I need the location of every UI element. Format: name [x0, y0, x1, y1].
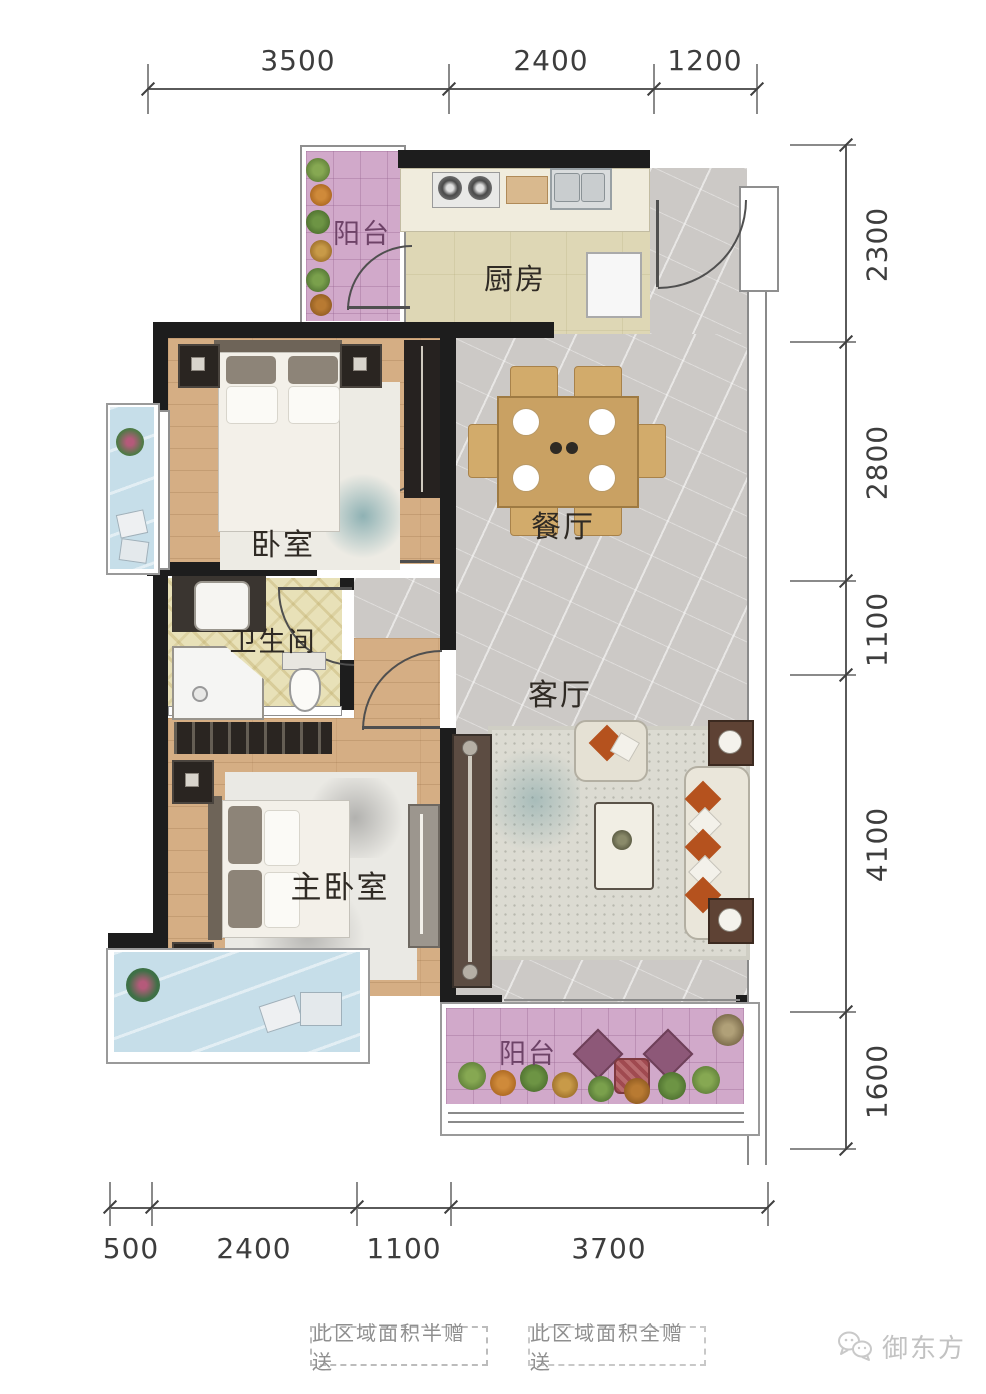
- wall-bathroom-left: [153, 578, 168, 718]
- wall-living-left-top: [440, 597, 456, 650]
- master-tv: [420, 814, 423, 934]
- plant: [692, 1066, 720, 1094]
- master-door-leaf: [362, 726, 440, 729]
- toilet-bowl: [289, 668, 321, 712]
- tv-console-knob: [462, 964, 478, 980]
- dim-bottom-1100: 1100: [344, 1232, 464, 1265]
- master-bed-headboard: [208, 796, 222, 940]
- dim-top-2400: 2400: [491, 44, 611, 77]
- balcony-bottom-label: 阳台: [488, 1032, 568, 1071]
- living-label: 客厅: [500, 670, 620, 714]
- plant: [306, 268, 330, 292]
- bedroom-label: 卧室: [223, 520, 343, 564]
- dim-bottom-2400: 2400: [194, 1232, 314, 1265]
- place-setting: [588, 408, 616, 436]
- entry-door-leaf: [656, 200, 659, 287]
- pillow: [288, 356, 338, 384]
- plant: [310, 294, 332, 316]
- plant: [490, 1070, 516, 1096]
- wall-bedroom-right: [440, 322, 456, 597]
- balcony-door-leaf: [347, 306, 410, 309]
- tv-console: [452, 734, 492, 988]
- coffee-table-decor: [612, 830, 632, 850]
- plant: [126, 968, 160, 1002]
- dim-right-2300: 2300: [861, 195, 894, 295]
- place-setting: [512, 464, 540, 492]
- pillow: [228, 806, 262, 864]
- legend-half-gift: 此区域面积半赠送: [310, 1326, 488, 1366]
- floor-plan: 3500 2400 1200 2300 2800 1100 4100 1600 …: [0, 0, 986, 1394]
- side-table-plant: [718, 730, 742, 754]
- pillow: [226, 386, 278, 424]
- nightstand-lamp: [353, 357, 367, 371]
- sink-basin: [554, 173, 580, 202]
- bathroom-label: 卫生间: [203, 620, 343, 659]
- tv-console-knob: [462, 740, 478, 756]
- cutting-board: [506, 176, 548, 204]
- dim-top-1200: 1200: [645, 44, 765, 77]
- living-rug-accent: [490, 740, 580, 860]
- wechat-bubbles-icon: [836, 1330, 874, 1362]
- table-centerpiece: [566, 442, 578, 454]
- dim-right-4100: 4100: [861, 795, 894, 895]
- wall-master-left: [153, 718, 168, 940]
- dining-chair: [468, 424, 500, 478]
- balcony-top-label: 阳台: [322, 212, 402, 251]
- pillow: [264, 810, 300, 866]
- place-setting: [588, 464, 616, 492]
- dim-bottom-500: 500: [71, 1232, 191, 1265]
- wall-kitchen-dining-stub: [456, 322, 554, 338]
- stove-burner: [438, 176, 462, 200]
- pillow: [226, 356, 276, 384]
- nightstand-lamp: [185, 773, 199, 787]
- table-centerpiece: [550, 442, 562, 454]
- watermark: 御东方: [836, 1324, 986, 1368]
- pillow: [288, 386, 340, 424]
- shower-drain: [192, 686, 208, 702]
- railing-line: [448, 1121, 744, 1123]
- dim-line-bottom: [110, 1207, 768, 1209]
- dim-top-3500: 3500: [238, 44, 358, 77]
- nightstand-lamp: [191, 357, 205, 371]
- platform-plant: [116, 428, 144, 456]
- fridge: [586, 252, 642, 318]
- dim-line-top: [148, 88, 757, 90]
- plant: [310, 184, 332, 206]
- dim-bottom-3700: 3700: [549, 1232, 669, 1265]
- plant: [588, 1076, 614, 1102]
- plant: [624, 1078, 650, 1104]
- master-dresser: [174, 722, 332, 754]
- kitchen-label: 厨房: [455, 256, 575, 298]
- wall-bedroom-top: [153, 322, 443, 338]
- plant: [458, 1062, 486, 1090]
- plant: [552, 1072, 578, 1098]
- master-bedroom-label: 主卧室: [260, 862, 420, 907]
- place-setting: [512, 408, 540, 436]
- dim-right-1100: 1100: [861, 580, 894, 680]
- pillow: [228, 870, 262, 928]
- platform-pillow: [300, 992, 342, 1026]
- dim-right-2800: 2800: [861, 413, 894, 513]
- hallway-floor: [354, 578, 440, 638]
- watermark-brand: 御东方: [882, 1328, 966, 1365]
- bathroom-door-leaf: [278, 587, 352, 590]
- railing-line: [448, 1112, 744, 1114]
- plant: [306, 158, 330, 182]
- platform-pillow: [119, 538, 150, 564]
- dining-label: 餐厅: [503, 502, 623, 546]
- stove-burner: [468, 176, 492, 200]
- legend-full-gift: 此区域面积全赠送: [528, 1326, 706, 1366]
- tv: [468, 756, 472, 962]
- plant: [658, 1072, 686, 1100]
- side-table-plant: [718, 908, 742, 932]
- dim-right-1600: 1600: [861, 1032, 894, 1132]
- wardrobe-rail: [421, 346, 423, 492]
- wall-kitchen-top: [398, 150, 650, 168]
- dim-line-right: [845, 145, 847, 1149]
- wall-bathroom-right-bottom: [340, 660, 354, 710]
- sink-basin: [581, 173, 605, 202]
- plant: [712, 1014, 744, 1046]
- slider-track: [504, 999, 740, 1001]
